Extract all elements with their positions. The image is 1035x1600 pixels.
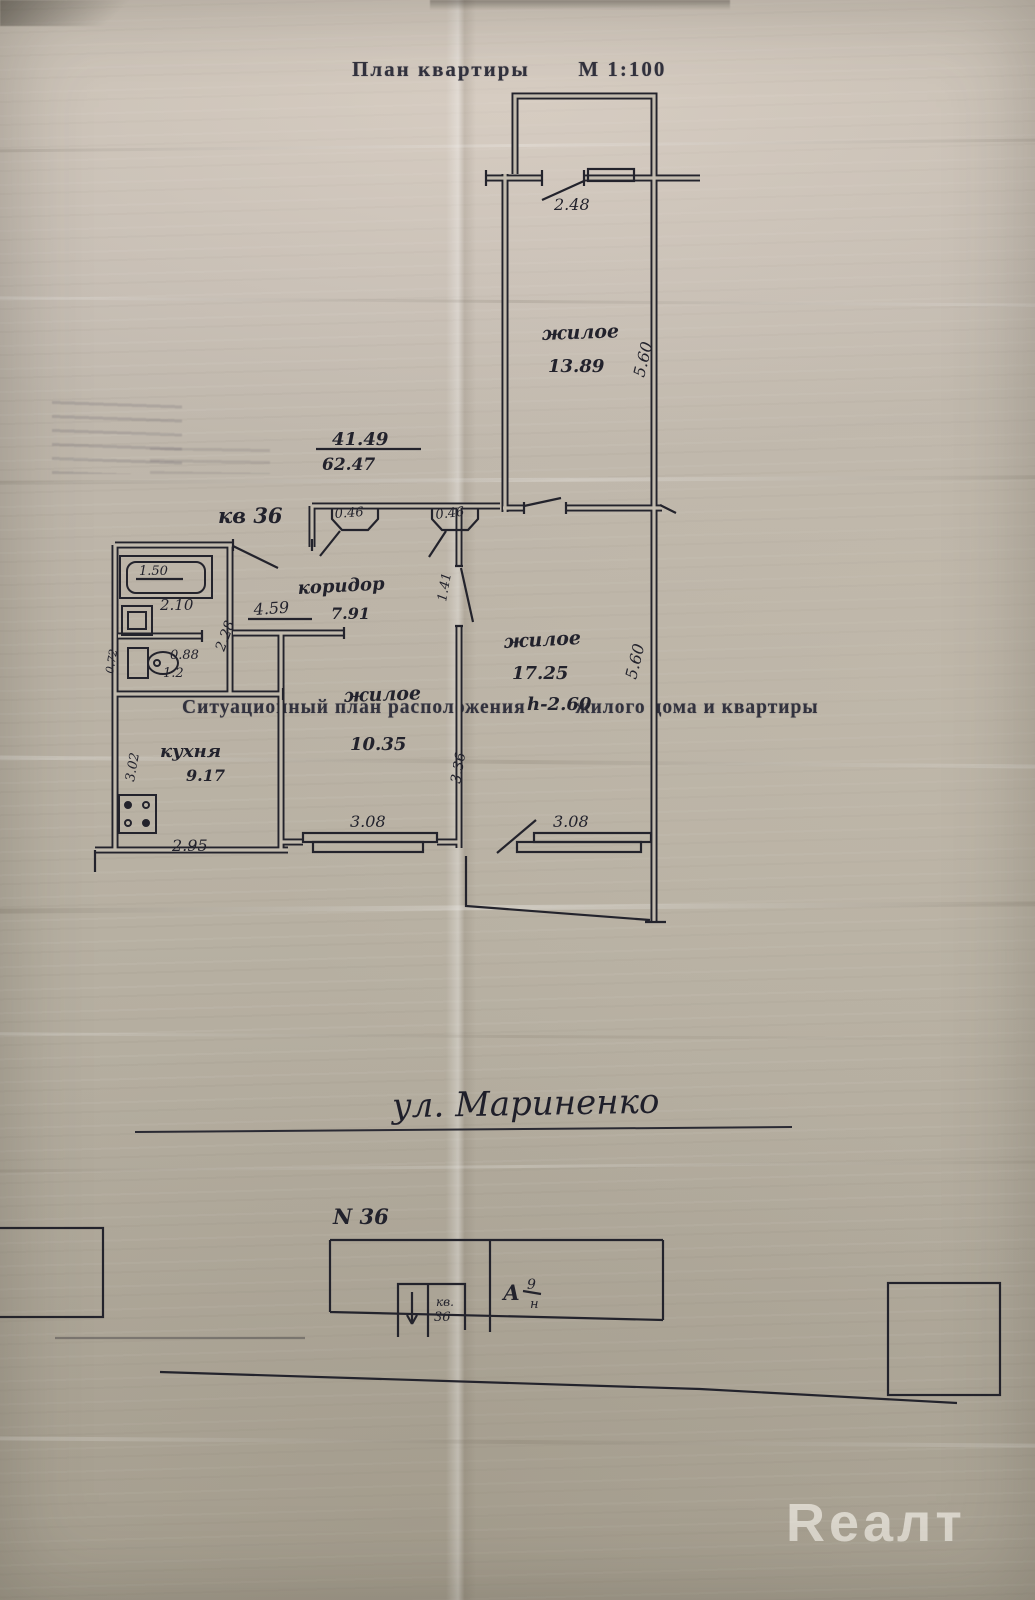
window-a-sill (313, 842, 423, 852)
site-left-building (0, 1228, 103, 1317)
building-fraction-bottom: н (530, 1297, 539, 1312)
apt-box-line2: 36 (434, 1310, 451, 1325)
area-fraction-bottom: 62.47 (322, 455, 375, 475)
site-apartment-box (398, 1284, 465, 1337)
building-letter: А (501, 1280, 520, 1305)
area-fraction-top: 41.49 (332, 429, 389, 450)
building-fraction-top: 9 (527, 1277, 536, 1293)
room-top-area: 13.89 (548, 356, 605, 377)
room-middle-name: жилое (343, 682, 421, 707)
stove-icon (119, 795, 156, 833)
window-b-sill (517, 842, 641, 852)
room-right-area: 17.25 (512, 663, 568, 684)
dim-balcony: 2.48 (553, 195, 590, 214)
dim-mid-room-w: 3.36 (448, 751, 469, 785)
site-right-building (888, 1283, 1000, 1395)
entrance-arrow-icon (407, 1292, 417, 1324)
sink-icon (122, 606, 152, 635)
dim-window-b: 3.08 (553, 812, 589, 831)
corridor-area: 7.91 (331, 604, 370, 623)
dim-bath-len: 2.10 (159, 596, 194, 614)
dim-closet-a: 0.46 (334, 505, 364, 522)
dim-hall-len: 4.59 (252, 598, 290, 620)
toilet-icon (128, 648, 148, 678)
dim-right-depth: 5.60 (621, 642, 648, 681)
scanned-floorplan-page: План квартиры М 1:100 Ситуационный план … (0, 0, 1035, 1600)
window-a-outer (303, 833, 437, 842)
dim-window-a: 3.08 (350, 812, 386, 831)
window-b-outer (534, 833, 651, 842)
corridor-name: коридор (297, 573, 385, 599)
room-top-name: жилое (541, 320, 619, 345)
ceiling-height-note: h-2.60 (527, 694, 592, 715)
street-underline (135, 1127, 792, 1132)
kitchen-name: кухня (160, 741, 221, 762)
apt-box-line1: кв. (436, 1295, 454, 1309)
dim-kitchen-len: 2.95 (171, 836, 208, 855)
apartment-number-label: кв 36 (218, 503, 283, 528)
dim-kitchen-w: 3.02 (123, 752, 143, 783)
dim-corridor-w: 1.41 (435, 572, 455, 603)
dim-wc-len: 1.2 (163, 666, 184, 681)
lower-extension-walls (95, 850, 666, 922)
street-edge-line (160, 1372, 957, 1403)
room-middle-area: 10.35 (350, 734, 406, 755)
floor-plan-drawing: жилое 13.89 жилое 17.25 h-2.60 жилое 10.… (0, 0, 1035, 1600)
walls (95, 96, 700, 922)
site-plan (0, 1228, 1000, 1403)
kitchen-area: 9.17 (186, 766, 225, 785)
site-main-building (330, 1240, 663, 1332)
room-right-name: жилое (503, 627, 581, 653)
site-house-number: N 36 (332, 1204, 389, 1229)
dim-wc-w: 0.88 (170, 648, 199, 663)
dim-tub-len: 1.50 (139, 564, 168, 579)
